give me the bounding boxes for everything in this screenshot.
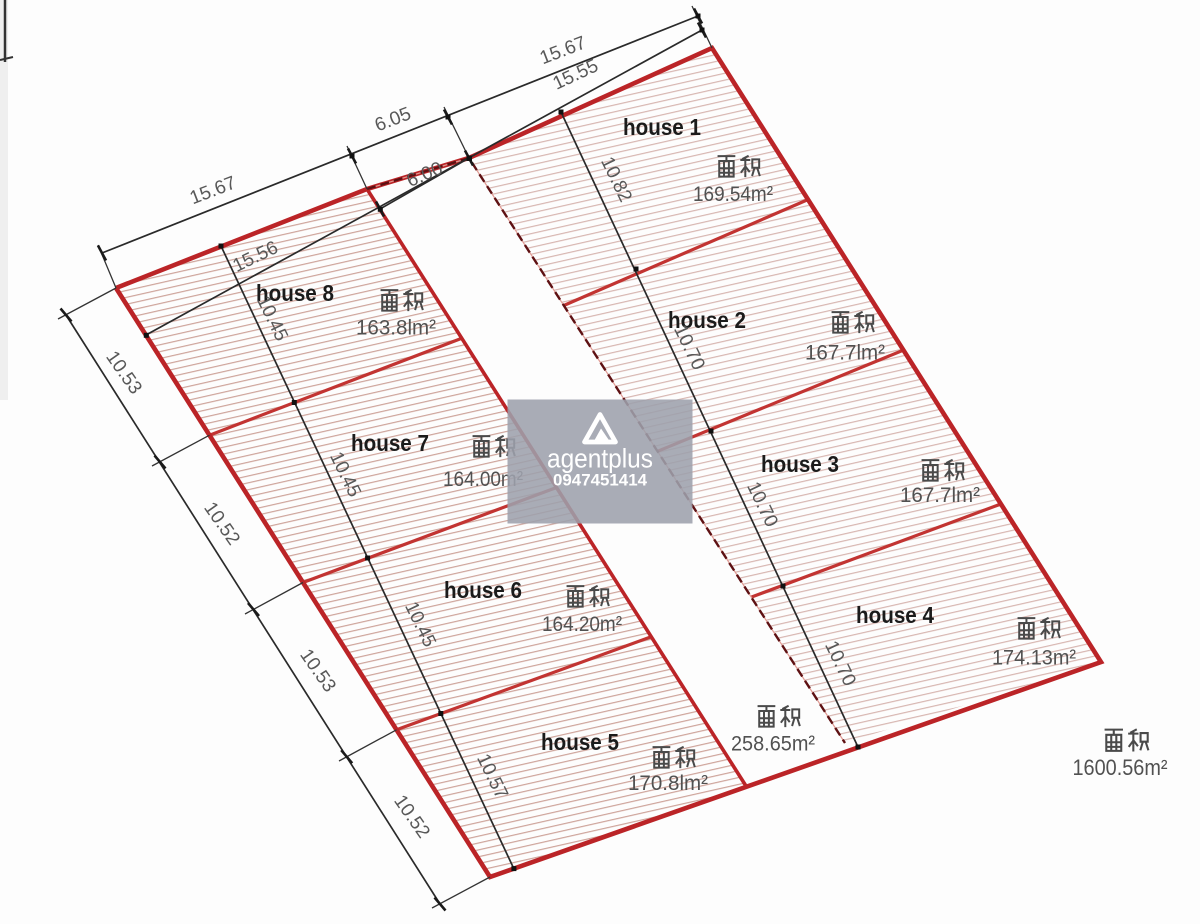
svg-text:house 3: house 3 (761, 451, 839, 477)
svg-text:163.8lm²: 163.8lm² (356, 317, 436, 340)
svg-text:164.20m²: 164.20m² (542, 613, 622, 636)
svg-text:174.13m²: 174.13m² (992, 647, 1076, 670)
svg-text:0947451414: 0947451414 (553, 471, 648, 490)
svg-text:258.65m²: 258.65m² (731, 733, 815, 756)
svg-text:house 5: house 5 (541, 729, 619, 755)
svg-text:house 6: house 6 (444, 577, 522, 603)
svg-text:house 4: house 4 (856, 602, 934, 628)
svg-text:1600.56m²: 1600.56m² (1073, 755, 1168, 780)
svg-text:169.54m²: 169.54m² (693, 183, 773, 206)
svg-text:167.7lm²: 167.7lm² (900, 484, 980, 507)
svg-text:house 7: house 7 (351, 430, 429, 456)
svg-text:house 1: house 1 (623, 114, 701, 140)
svg-text:170.8lm²: 170.8lm² (628, 772, 708, 795)
svg-text:167.7lm²: 167.7lm² (805, 342, 885, 365)
svg-text:agentplus: agentplus (547, 444, 653, 474)
